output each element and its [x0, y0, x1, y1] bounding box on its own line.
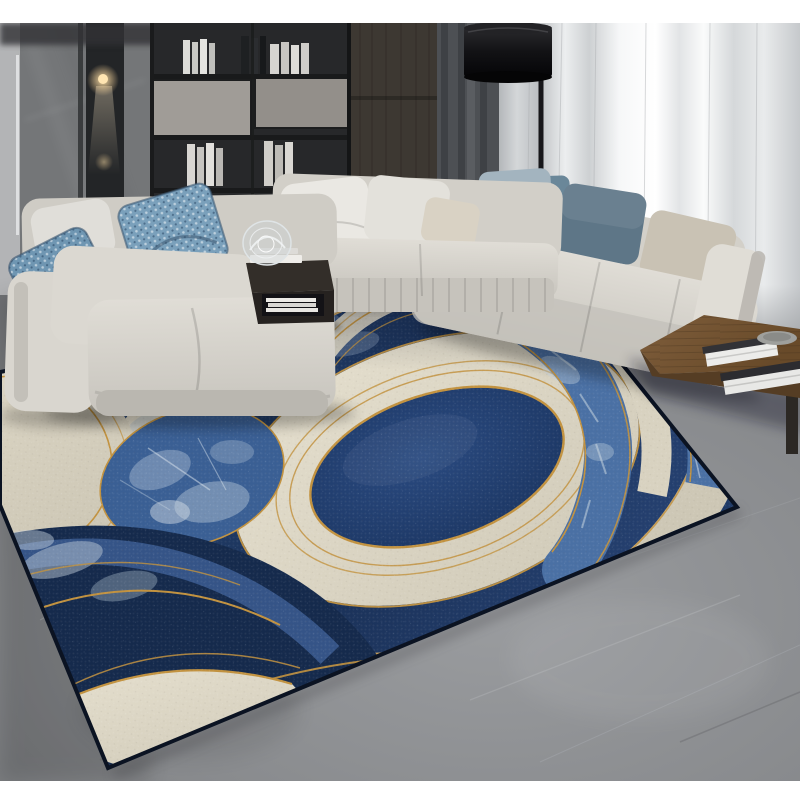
cabinet-door	[153, 80, 251, 137]
wall-corner-highlight	[16, 55, 19, 235]
cabinet-door	[255, 77, 349, 128]
table-leg	[786, 396, 798, 454]
photo-canvas	[0, 0, 800, 800]
letterbox-top	[0, 0, 800, 23]
side-table-top	[246, 260, 334, 293]
shelf-books	[266, 298, 318, 312]
recessed-niche	[86, 23, 124, 208]
letterbox-bottom	[0, 781, 800, 800]
glass-decor	[243, 221, 291, 265]
chaise-base	[96, 390, 328, 416]
lamp-shade	[464, 27, 552, 77]
living-room-photo	[0, 0, 800, 800]
